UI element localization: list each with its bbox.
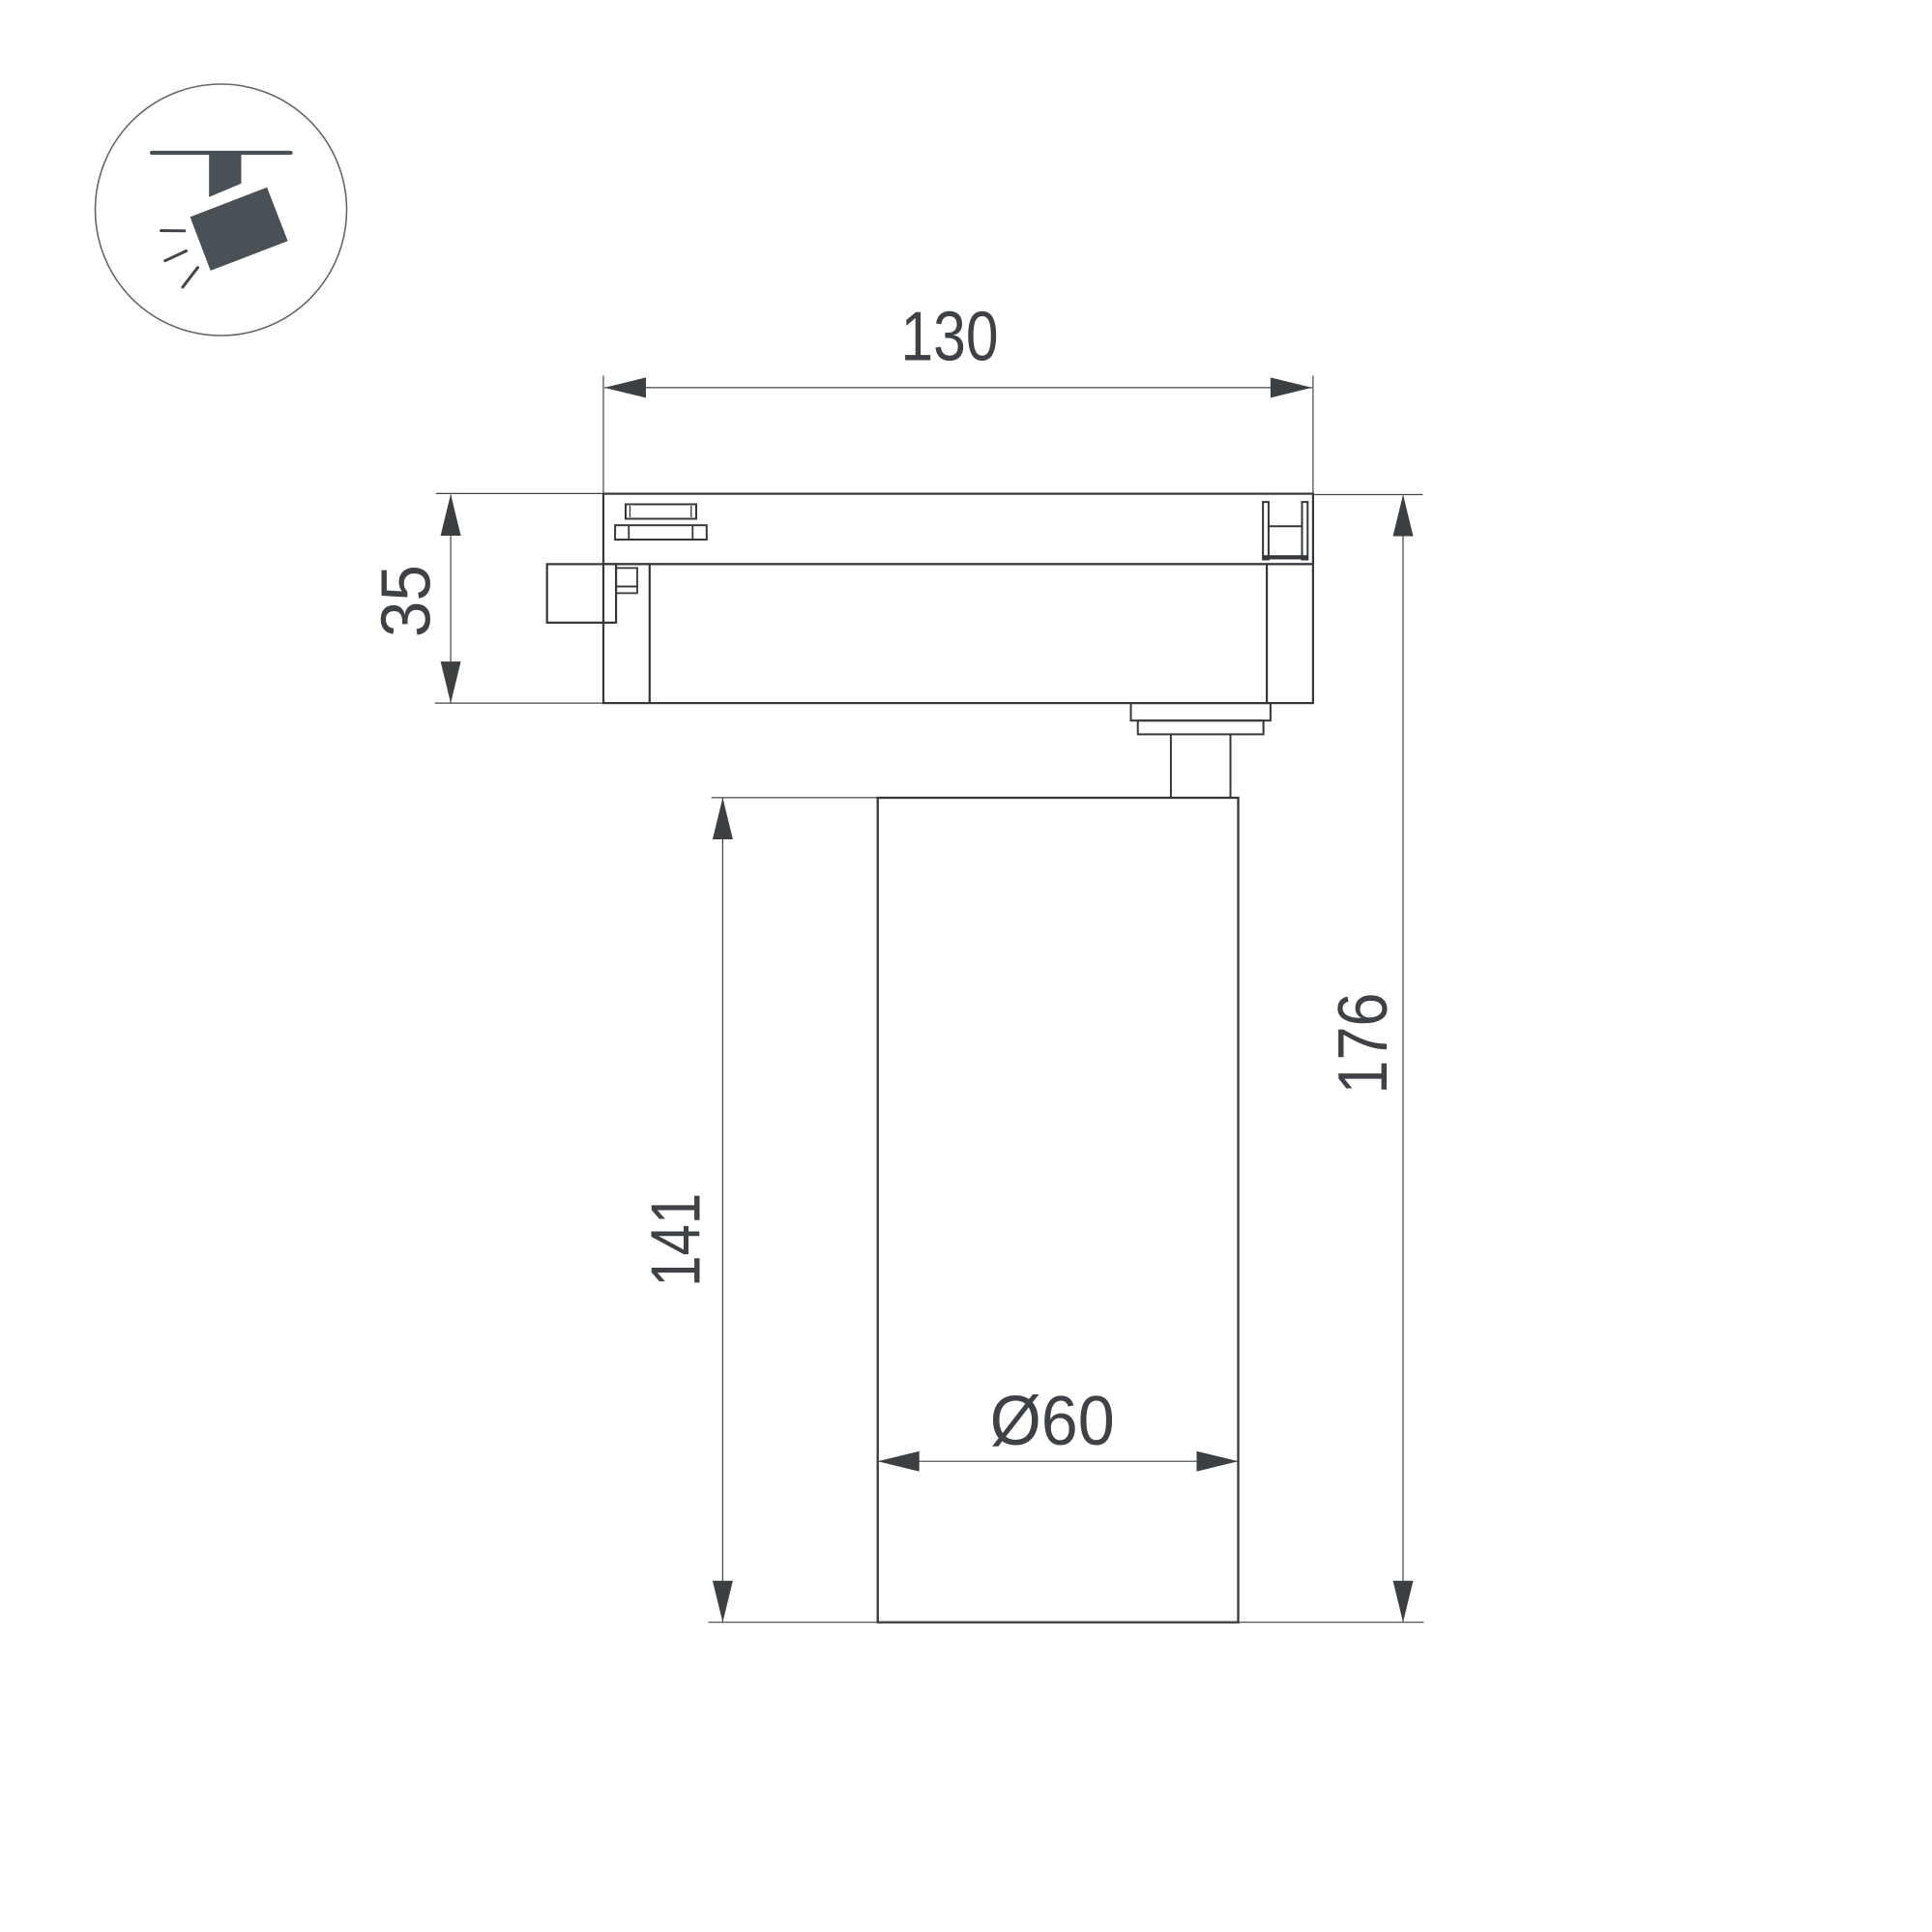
svg-text:Ø60: Ø60: [990, 1383, 1115, 1460]
svg-text:176: 176: [1325, 993, 1402, 1095]
svg-text:130: 130: [901, 299, 999, 376]
svg-text:35: 35: [367, 565, 445, 637]
svg-text:141: 141: [637, 1193, 715, 1287]
